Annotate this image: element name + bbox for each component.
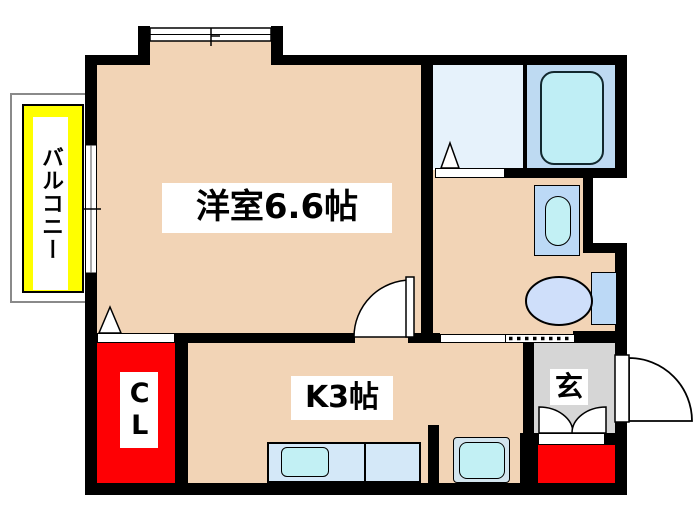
vanity-basin <box>545 196 571 246</box>
bay-floor <box>150 40 271 65</box>
kitchen-counter-divider <box>364 442 366 483</box>
wall-closet-east <box>175 343 188 483</box>
bay-post-left <box>138 26 150 65</box>
kitchen-sliding-door <box>440 334 507 343</box>
wall-shoe-right <box>605 433 617 445</box>
entrance-label: 玄 <box>550 369 588 405</box>
closet-label: CL <box>120 372 158 448</box>
wall-bath-bottom <box>505 168 627 178</box>
living-room-label: 洋室6.6帖 <box>162 183 392 233</box>
wall-right-top <box>615 55 627 178</box>
entry-door-leaf <box>615 355 629 422</box>
floor-plan: 洋室6.6帖 K3帖 CL 玄 バルコニー <box>0 0 700 525</box>
kitchen-sink <box>281 447 329 477</box>
wall-left-upper <box>85 55 97 145</box>
balcony-label: バルコニー <box>33 117 68 290</box>
wall-entrance-north <box>573 331 617 343</box>
wall-stove-stub <box>428 425 439 483</box>
hall-floor-lower <box>433 253 617 343</box>
wall-notch-vertical <box>583 178 593 253</box>
entrance-step-edge <box>505 334 575 343</box>
wall-living-south-b <box>408 333 440 343</box>
shoe-box <box>538 445 616 483</box>
shoe-cabinet-front <box>538 433 605 445</box>
wall-bottom <box>85 483 627 495</box>
closet-front-opening <box>97 333 175 343</box>
wall-left-lower <box>85 273 97 495</box>
toilet-tank <box>591 272 617 325</box>
bathtub <box>540 71 604 165</box>
wall-notch-horizontal <box>583 243 627 253</box>
entry-door-swing <box>629 358 692 421</box>
wall-top-right <box>283 55 627 65</box>
wall-entrance-west <box>523 343 534 433</box>
wall-living-south-a <box>175 333 355 343</box>
kitchen-label: K3帖 <box>291 376 393 420</box>
bay-post-right <box>271 26 283 65</box>
wall-living-east <box>421 63 433 343</box>
stove-top <box>459 442 505 479</box>
washroom-sliding-door <box>435 168 505 178</box>
wall-entrance-sw-block <box>520 433 538 495</box>
washroom-floor <box>433 63 527 168</box>
